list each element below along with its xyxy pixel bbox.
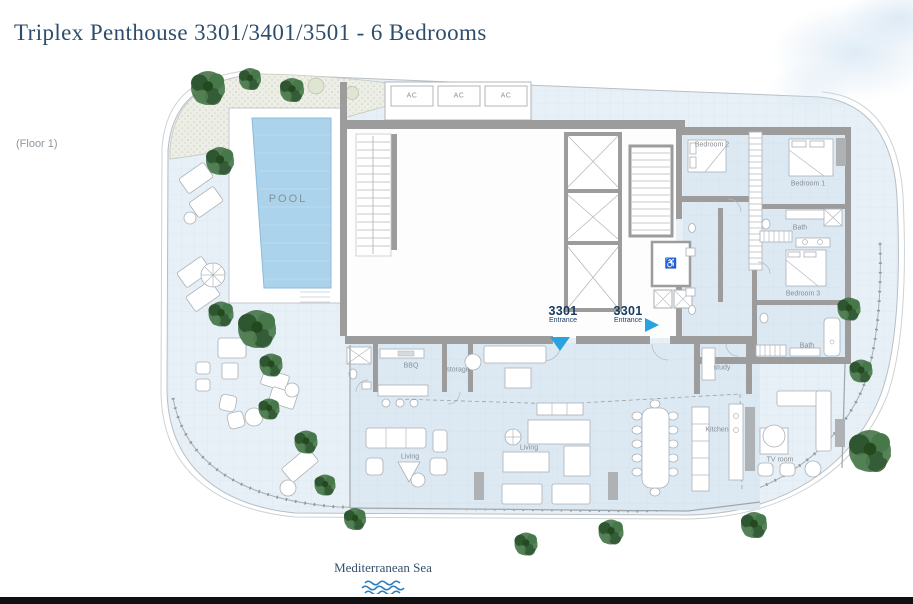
- entrance-word: Entrance: [596, 317, 660, 325]
- room-label-kitchen: Kitchen: [705, 427, 728, 434]
- entrance-unit-number: 3301: [531, 305, 595, 317]
- room-label-storage: storage: [446, 367, 469, 374]
- room-label-bath-lower: Bath: [800, 343, 814, 350]
- room-label-bedroom-3: Bedroom 3: [786, 291, 820, 298]
- room-label-tv-room: TV room: [767, 457, 794, 464]
- stairwell-left: [356, 134, 391, 256]
- entrance-label-1: 3301 Entrance: [531, 305, 595, 325]
- room-label-living-left: Living: [401, 454, 419, 461]
- pool-area: [229, 108, 346, 303]
- room-label-living-right: Living: [520, 445, 538, 452]
- ac-platform: [385, 82, 531, 120]
- accessible-wc-icon: ♿: [665, 259, 677, 270]
- entrance-label-2: 3301 Entrance: [596, 305, 660, 325]
- ac-unit-label: AC: [454, 93, 465, 100]
- room-label-bath-upper: Bath: [793, 225, 807, 232]
- ac-unit-label: AC: [407, 93, 418, 100]
- floor-label: (Floor 1): [16, 138, 58, 150]
- bottom-bar: [0, 597, 913, 604]
- sea-label: Mediterranean Sea: [303, 560, 463, 576]
- elevator-bank: [566, 134, 620, 310]
- room-label-study: study: [714, 365, 731, 372]
- room-label-bbq: BBQ: [404, 363, 419, 370]
- floorplan-page: Triplex Penthouse 3301/3401/3501 - 6 Bed…: [0, 0, 913, 604]
- page-title: Triplex Penthouse 3301/3401/3501 - 6 Bed…: [14, 20, 487, 46]
- entrance-word: Entrance: [531, 317, 595, 325]
- floorplan-canvas: [0, 0, 913, 604]
- room-label-bedroom-2: Bedroom 2: [695, 142, 729, 149]
- room-label-bedroom-1: Bedroom 1: [791, 181, 825, 188]
- entrance-unit-number: 3301: [596, 305, 660, 317]
- stairwell-right: [630, 146, 672, 236]
- waves-icon: [361, 580, 405, 594]
- ac-unit-label: AC: [501, 93, 512, 100]
- pool-label: POOL: [269, 193, 308, 205]
